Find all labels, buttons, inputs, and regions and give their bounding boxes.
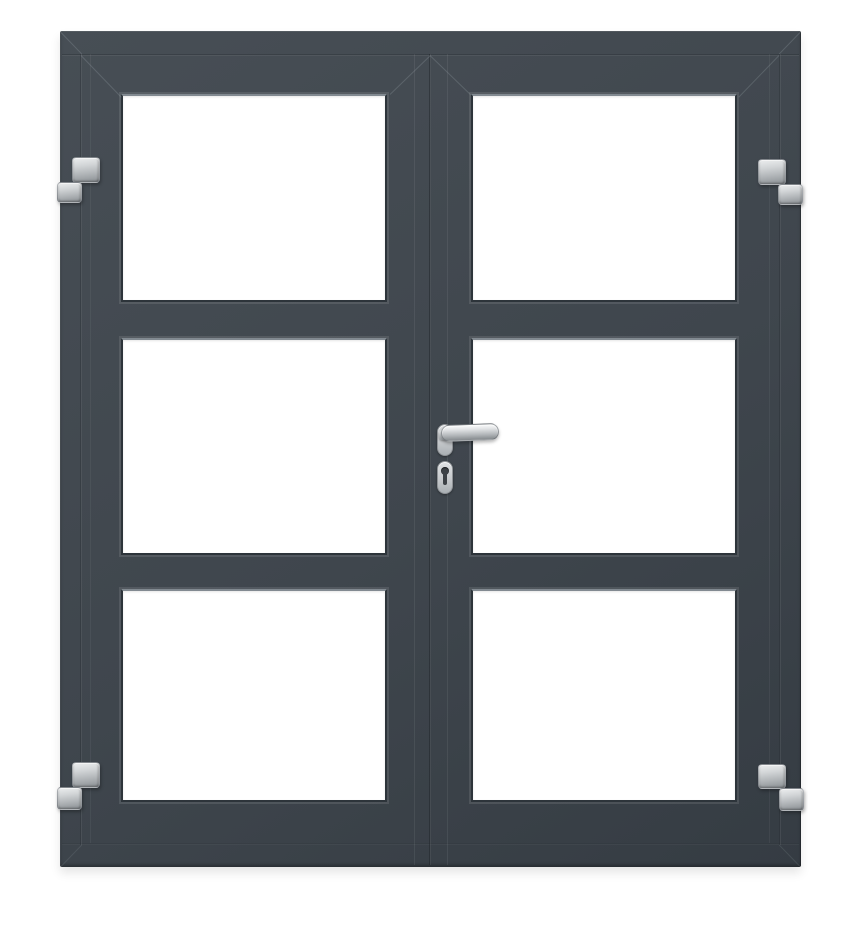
glass-pane-left-top xyxy=(121,94,387,302)
meeting-stile-bevel-right xyxy=(447,54,448,865)
meeting-stile-bevel-left xyxy=(414,54,415,865)
hinge-knuckle xyxy=(72,762,100,788)
hinge-knuckle xyxy=(758,159,786,185)
hinge-knuckle xyxy=(57,787,82,810)
lever-handle xyxy=(441,423,500,442)
glass-pane-right-bottom xyxy=(471,589,737,802)
frame-seam-bottom xyxy=(62,843,799,845)
keyhole-icon xyxy=(443,473,447,485)
hinge-knuckle xyxy=(57,182,82,203)
double-door xyxy=(60,31,801,867)
hinge-knuckle xyxy=(779,788,804,811)
product-image xyxy=(0,0,858,925)
hinge-knuckle xyxy=(778,184,803,205)
glass-pane-left-middle xyxy=(121,338,387,555)
leaf-meeting-seam xyxy=(429,54,431,865)
hinge-knuckle xyxy=(758,764,786,789)
hinge-knuckle xyxy=(72,157,100,183)
glass-pane-left-bottom xyxy=(121,589,387,802)
frame-seam-top xyxy=(62,54,799,56)
glass-pane-right-middle xyxy=(471,338,737,555)
glass-pane-right-top xyxy=(471,94,737,302)
